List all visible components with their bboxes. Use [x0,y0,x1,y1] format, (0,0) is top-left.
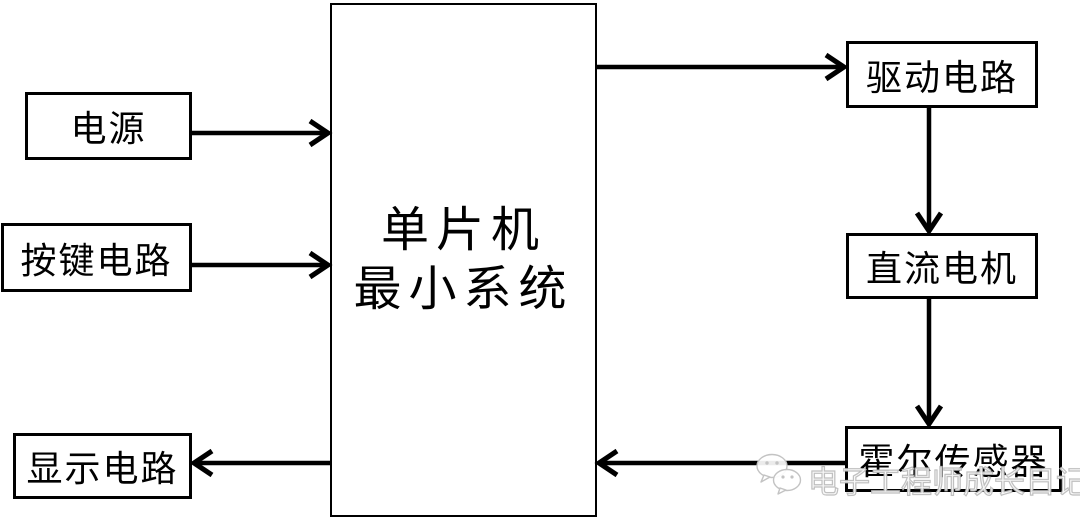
node-dc-motor: 直流电机 [846,233,1038,299]
node-key-circuit: 按键电路 [1,223,192,292]
node-hall-sensor-label: 霍尔传感器 [858,433,1048,485]
node-dc-motor-label: 直流电机 [866,240,1018,292]
node-power: 电源 [25,92,192,160]
node-mcu-label-line2: 最小系统 [353,260,573,319]
node-display-circuit-label: 显示电路 [26,440,178,492]
node-mcu-minimal-system: 单片机 最小系统 [330,3,597,517]
node-power-label: 电源 [70,100,146,152]
node-hall-sensor: 霍尔传感器 [845,426,1062,492]
node-drive-circuit-label: 驱动电路 [866,49,1018,101]
node-drive-circuit: 驱动电路 [846,41,1038,108]
block-diagram: 电源 按键电路 显示电路 单片机 最小系统 驱动电路 直流电机 霍尔传感器 [0,0,1080,520]
node-key-circuit-label: 按键电路 [20,232,172,284]
wechat-icon [754,452,806,496]
node-display-circuit: 显示电路 [13,433,192,499]
node-mcu-label-line1: 单片机 [381,201,546,260]
